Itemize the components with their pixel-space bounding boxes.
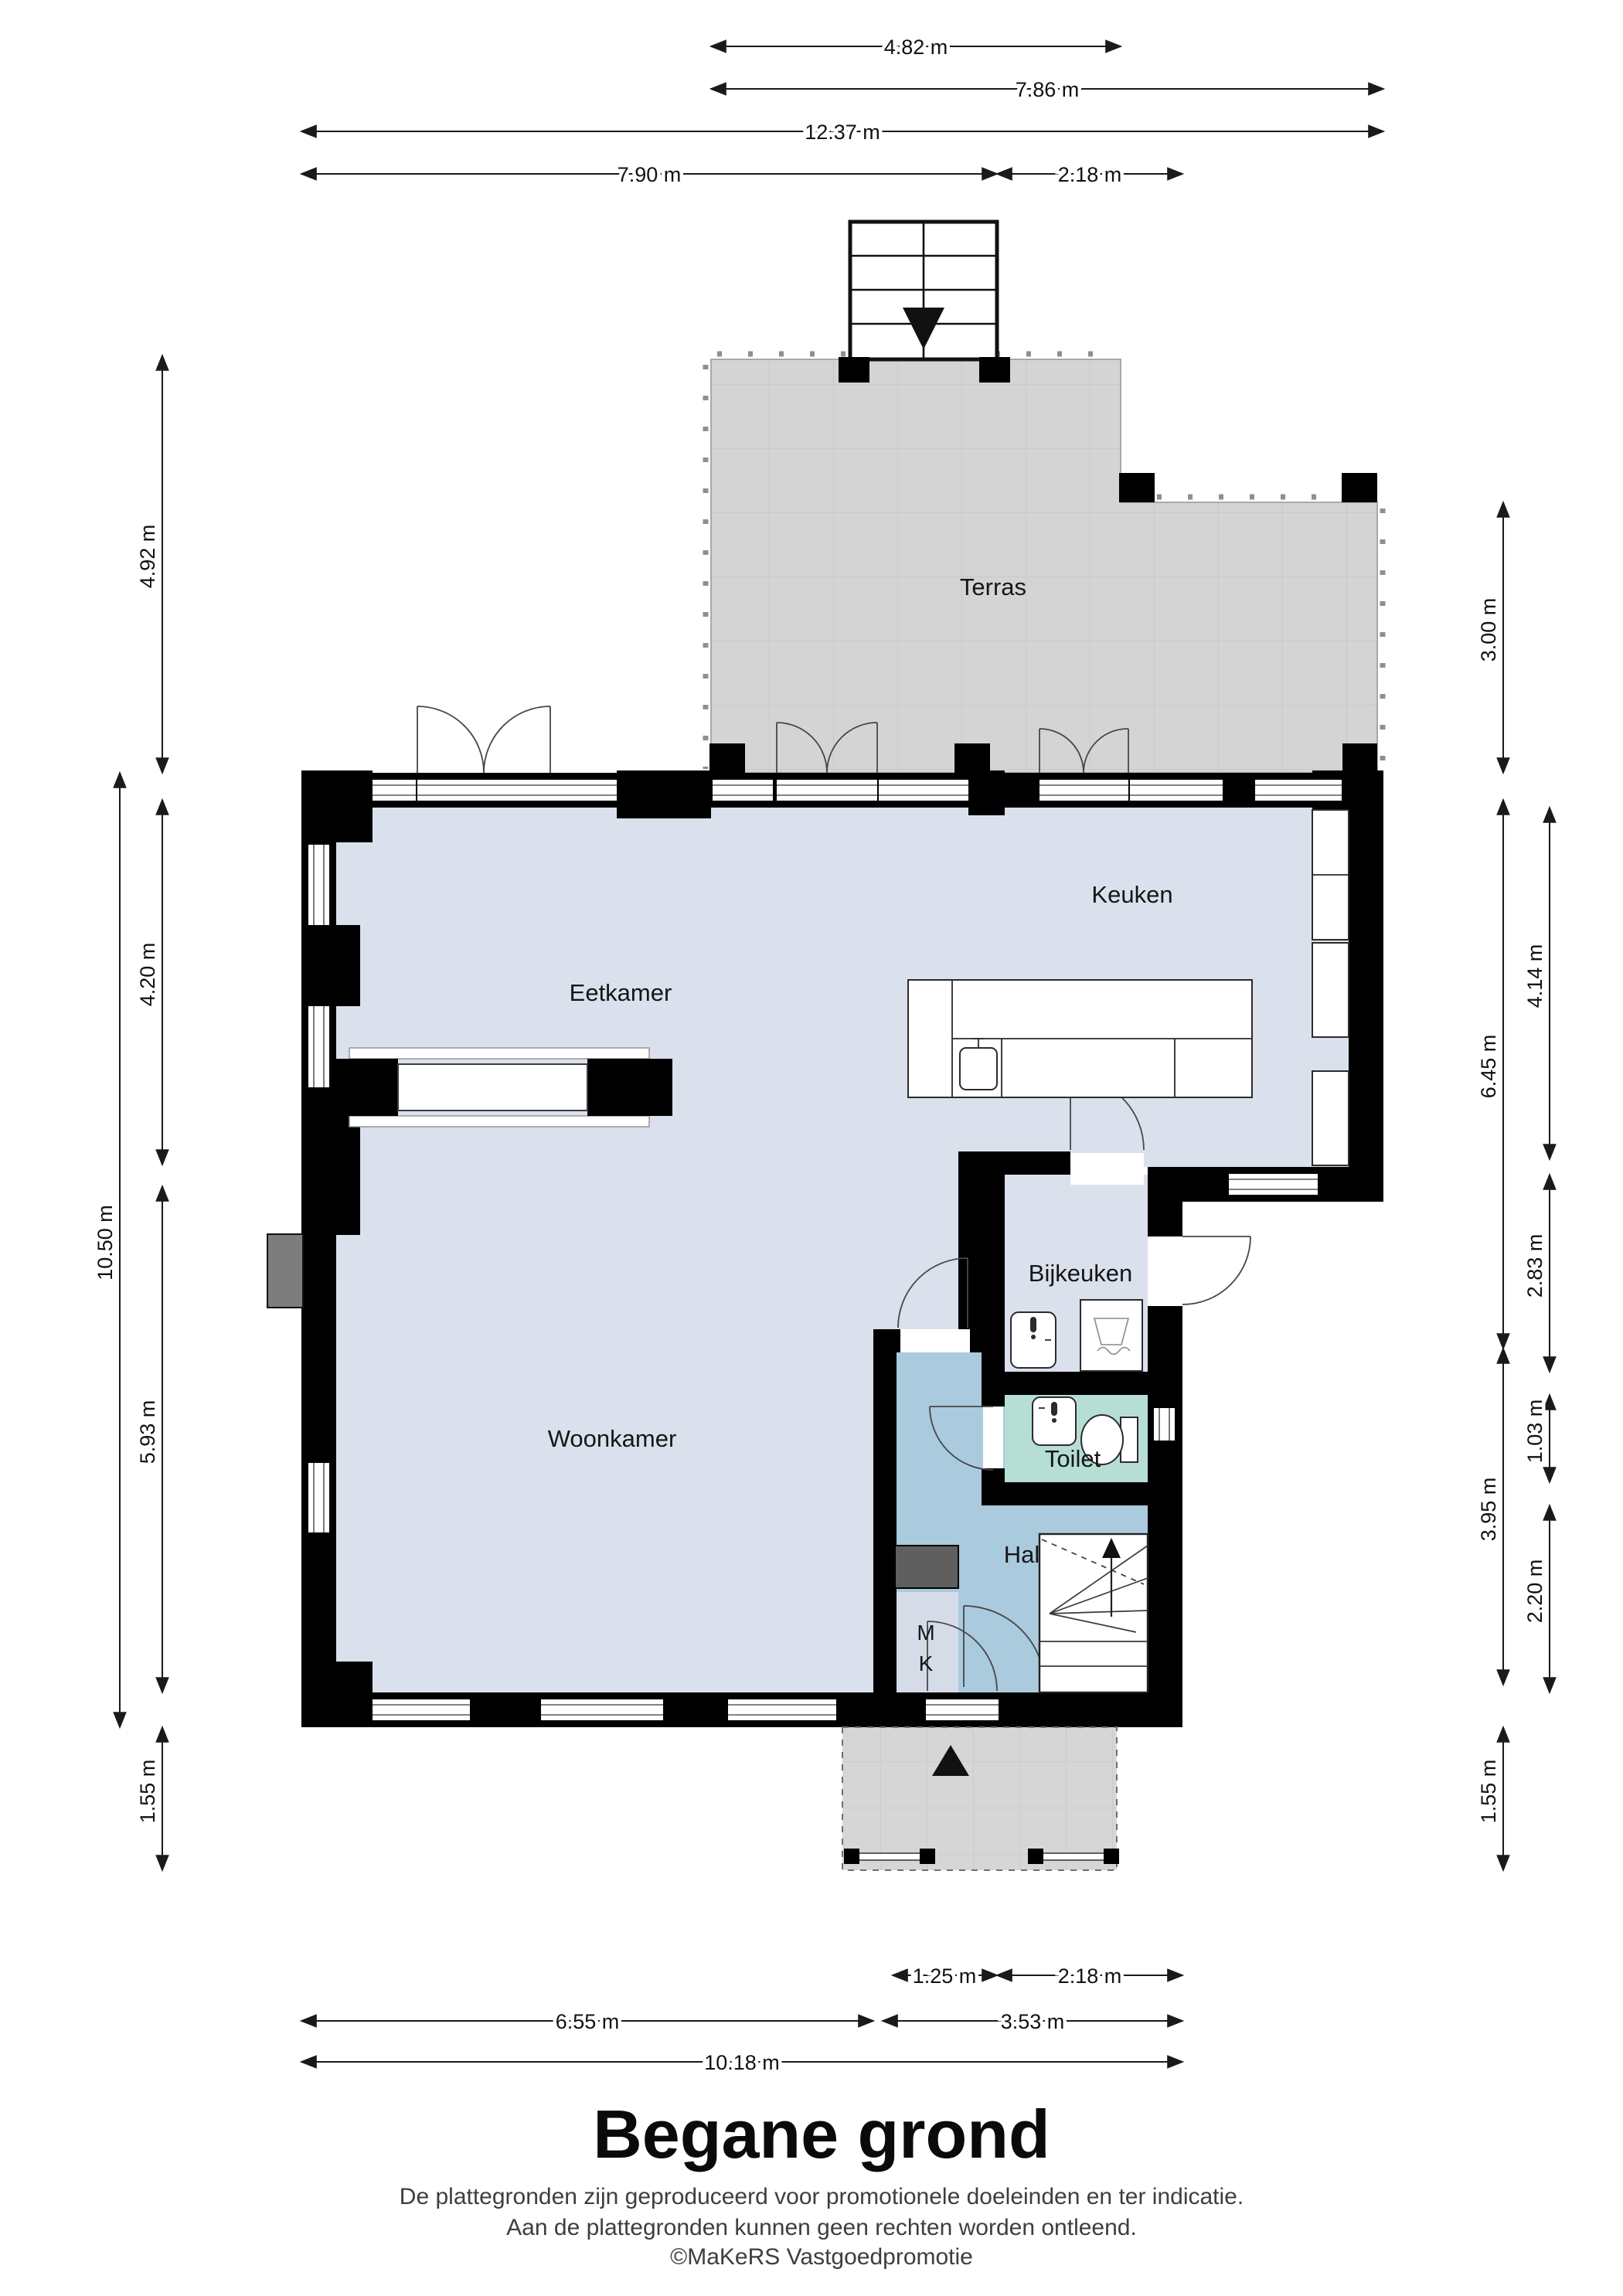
room-label-meterkast-k: K (919, 1651, 934, 1675)
svg-text:7.90 m: 7.90 m (618, 163, 682, 186)
svg-text:4.82 m: 4.82 m (884, 36, 948, 59)
kitchen-sink (960, 1048, 997, 1090)
dim-right-hal: 2.20 m (1523, 1505, 1550, 1692)
dim-top-terras-upper: 4.82 m (711, 36, 1121, 59)
svg-text:2.18 m: 2.18 m (1058, 163, 1122, 186)
svg-text:4.20 m: 4.20 m (136, 943, 159, 1007)
dim-bottom-east-bay: 2.18 m (997, 1964, 1182, 1988)
disclaimer-line2: Aan de plattegronden kunnen geen rechten… (506, 2215, 1137, 2240)
svg-text:6.45 m: 6.45 m (1477, 1035, 1500, 1099)
svg-text:3.00 m: 3.00 m (1477, 598, 1500, 662)
dim-bottom-hal-section: 3.53 m (883, 2010, 1182, 2033)
floor-title: Begane grond (593, 2096, 1050, 2172)
svg-text:1.55 m: 1.55 m (136, 1760, 159, 1824)
svg-text:3.53 m: 3.53 m (1001, 2010, 1065, 2033)
dim-top-east-section: 2.18 m (997, 163, 1182, 186)
window-top-2 (550, 780, 617, 801)
dim-right-porch: 1.55 m (1477, 1727, 1503, 1870)
window-left-2 (308, 1006, 329, 1087)
porch-railing-left (853, 1853, 924, 1860)
window-top-5 (1130, 780, 1223, 801)
svg-text:3.95 m: 3.95 m (1477, 1478, 1500, 1542)
disclaimer-line1: De plattegronden zijn geproduceerd voor … (400, 2184, 1244, 2209)
dim-bottom-door-bay: 1.25 m (893, 1964, 997, 1988)
entrance-porch (842, 1727, 1119, 1870)
window-top-6 (1255, 780, 1342, 801)
svg-text:1.55 m: 1.55 m (1477, 1760, 1500, 1824)
dim-left-house-height: 10.50 m (94, 773, 120, 1727)
window-top-1 (373, 780, 416, 801)
dim-top-terras-full: 7.86 m (711, 78, 1383, 101)
window-bottom-3 (728, 1699, 836, 1720)
window-bottom-1 (373, 1699, 470, 1720)
room-label-woonkamer: Woonkamer (548, 1425, 677, 1452)
dim-right-toilet: 1.03 m (1523, 1395, 1550, 1482)
porch-railing-right (1039, 1853, 1110, 1860)
door-bijkeuken-exterior (1182, 1236, 1250, 1304)
dim-top-west-section: 7.90 m (301, 163, 997, 186)
svg-text:1.25 m: 1.25 m (913, 1964, 977, 1988)
room-label-hal: Hal (1004, 1541, 1040, 1568)
svg-text:5.93 m: 5.93 m (136, 1400, 159, 1464)
french-door-north (417, 706, 550, 773)
meterkast-duct (895, 1546, 958, 1588)
dim-left-terras-height: 4.92 m (136, 355, 162, 773)
washing-machine (1080, 1300, 1142, 1371)
dim-left-woonkamer: 5.93 m (136, 1186, 162, 1692)
window-toilet-east (1154, 1408, 1175, 1441)
front-door-sill (926, 1699, 999, 1720)
credit-line: ©MaKeRS Vastgoedpromotie (670, 2244, 973, 2270)
terrace-stairs (850, 222, 997, 359)
hal-staircase (1039, 1534, 1148, 1692)
dim-bottom-woonkamer: 6.55 m (301, 2010, 873, 2033)
dim-left-porch: 1.55 m (136, 1727, 162, 1870)
room-label-terras: Terras (960, 573, 1026, 600)
dim-right-upper-section: 6.45 m (1477, 800, 1503, 1349)
floorplan-page: Terras Keuken Eetkamer Bijkeuken Woonkam… (0, 0, 1623, 2296)
svg-text:6.55 m: 6.55 m (556, 2010, 620, 2033)
svg-text:10.50 m: 10.50 m (94, 1205, 117, 1281)
window-kitchen-south (1229, 1174, 1318, 1195)
kitchen-cabinets (1312, 810, 1349, 1165)
room-label-eetkamer: Eetkamer (570, 979, 672, 1006)
floorplan-drawing: Terras Keuken Eetkamer Bijkeuken Woonkam… (0, 0, 1623, 2296)
room-label-toilet: Toilet (1045, 1445, 1101, 1472)
dim-right-keuken: 4.14 m (1523, 808, 1550, 1159)
terrace-deck (711, 359, 1377, 773)
svg-text:7.86 m: 7.86 m (1016, 78, 1080, 101)
room-label-keuken: Keuken (1091, 881, 1172, 908)
svg-text:2.83 m: 2.83 m (1523, 1234, 1546, 1298)
toilet-basin (1033, 1397, 1076, 1445)
dim-right-lower-section: 3.95 m (1477, 1349, 1503, 1685)
svg-text:2.18 m: 2.18 m (1058, 1964, 1122, 1988)
terrace (706, 354, 1383, 773)
svg-text:2.20 m: 2.20 m (1523, 1560, 1546, 1624)
window-top-4 (879, 780, 968, 801)
svg-text:4.14 m: 4.14 m (1523, 944, 1546, 1009)
dim-right-terras-ext: 3.00 m (1477, 502, 1503, 773)
window-left-1 (308, 845, 329, 925)
dim-bottom-house-full: 10.18 m (301, 2051, 1182, 2074)
dim-top-house-full: 12.37 m (301, 121, 1383, 144)
chimney (267, 1234, 303, 1308)
svg-text:12.37 m: 12.37 m (805, 121, 880, 144)
window-top-3 (713, 780, 773, 801)
svg-text:4.92 m: 4.92 m (136, 525, 159, 589)
svg-text:1.03 m: 1.03 m (1523, 1400, 1546, 1464)
dim-left-eetkamer: 4.20 m (136, 800, 162, 1165)
dim-right-bijkeuken: 2.83 m (1523, 1175, 1550, 1372)
bijkeuken-basin (1011, 1312, 1056, 1368)
window-bottom-2 (541, 1699, 663, 1720)
kitchen-island (908, 980, 1252, 1097)
room-label-meterkast-m: M (917, 1621, 934, 1645)
room-label-bijkeuken: Bijkeuken (1029, 1260, 1132, 1287)
window-left-3 (308, 1463, 329, 1532)
svg-text:10.18 m: 10.18 m (704, 2051, 780, 2074)
room-floor-living-dining-kitchen (336, 808, 1349, 1692)
